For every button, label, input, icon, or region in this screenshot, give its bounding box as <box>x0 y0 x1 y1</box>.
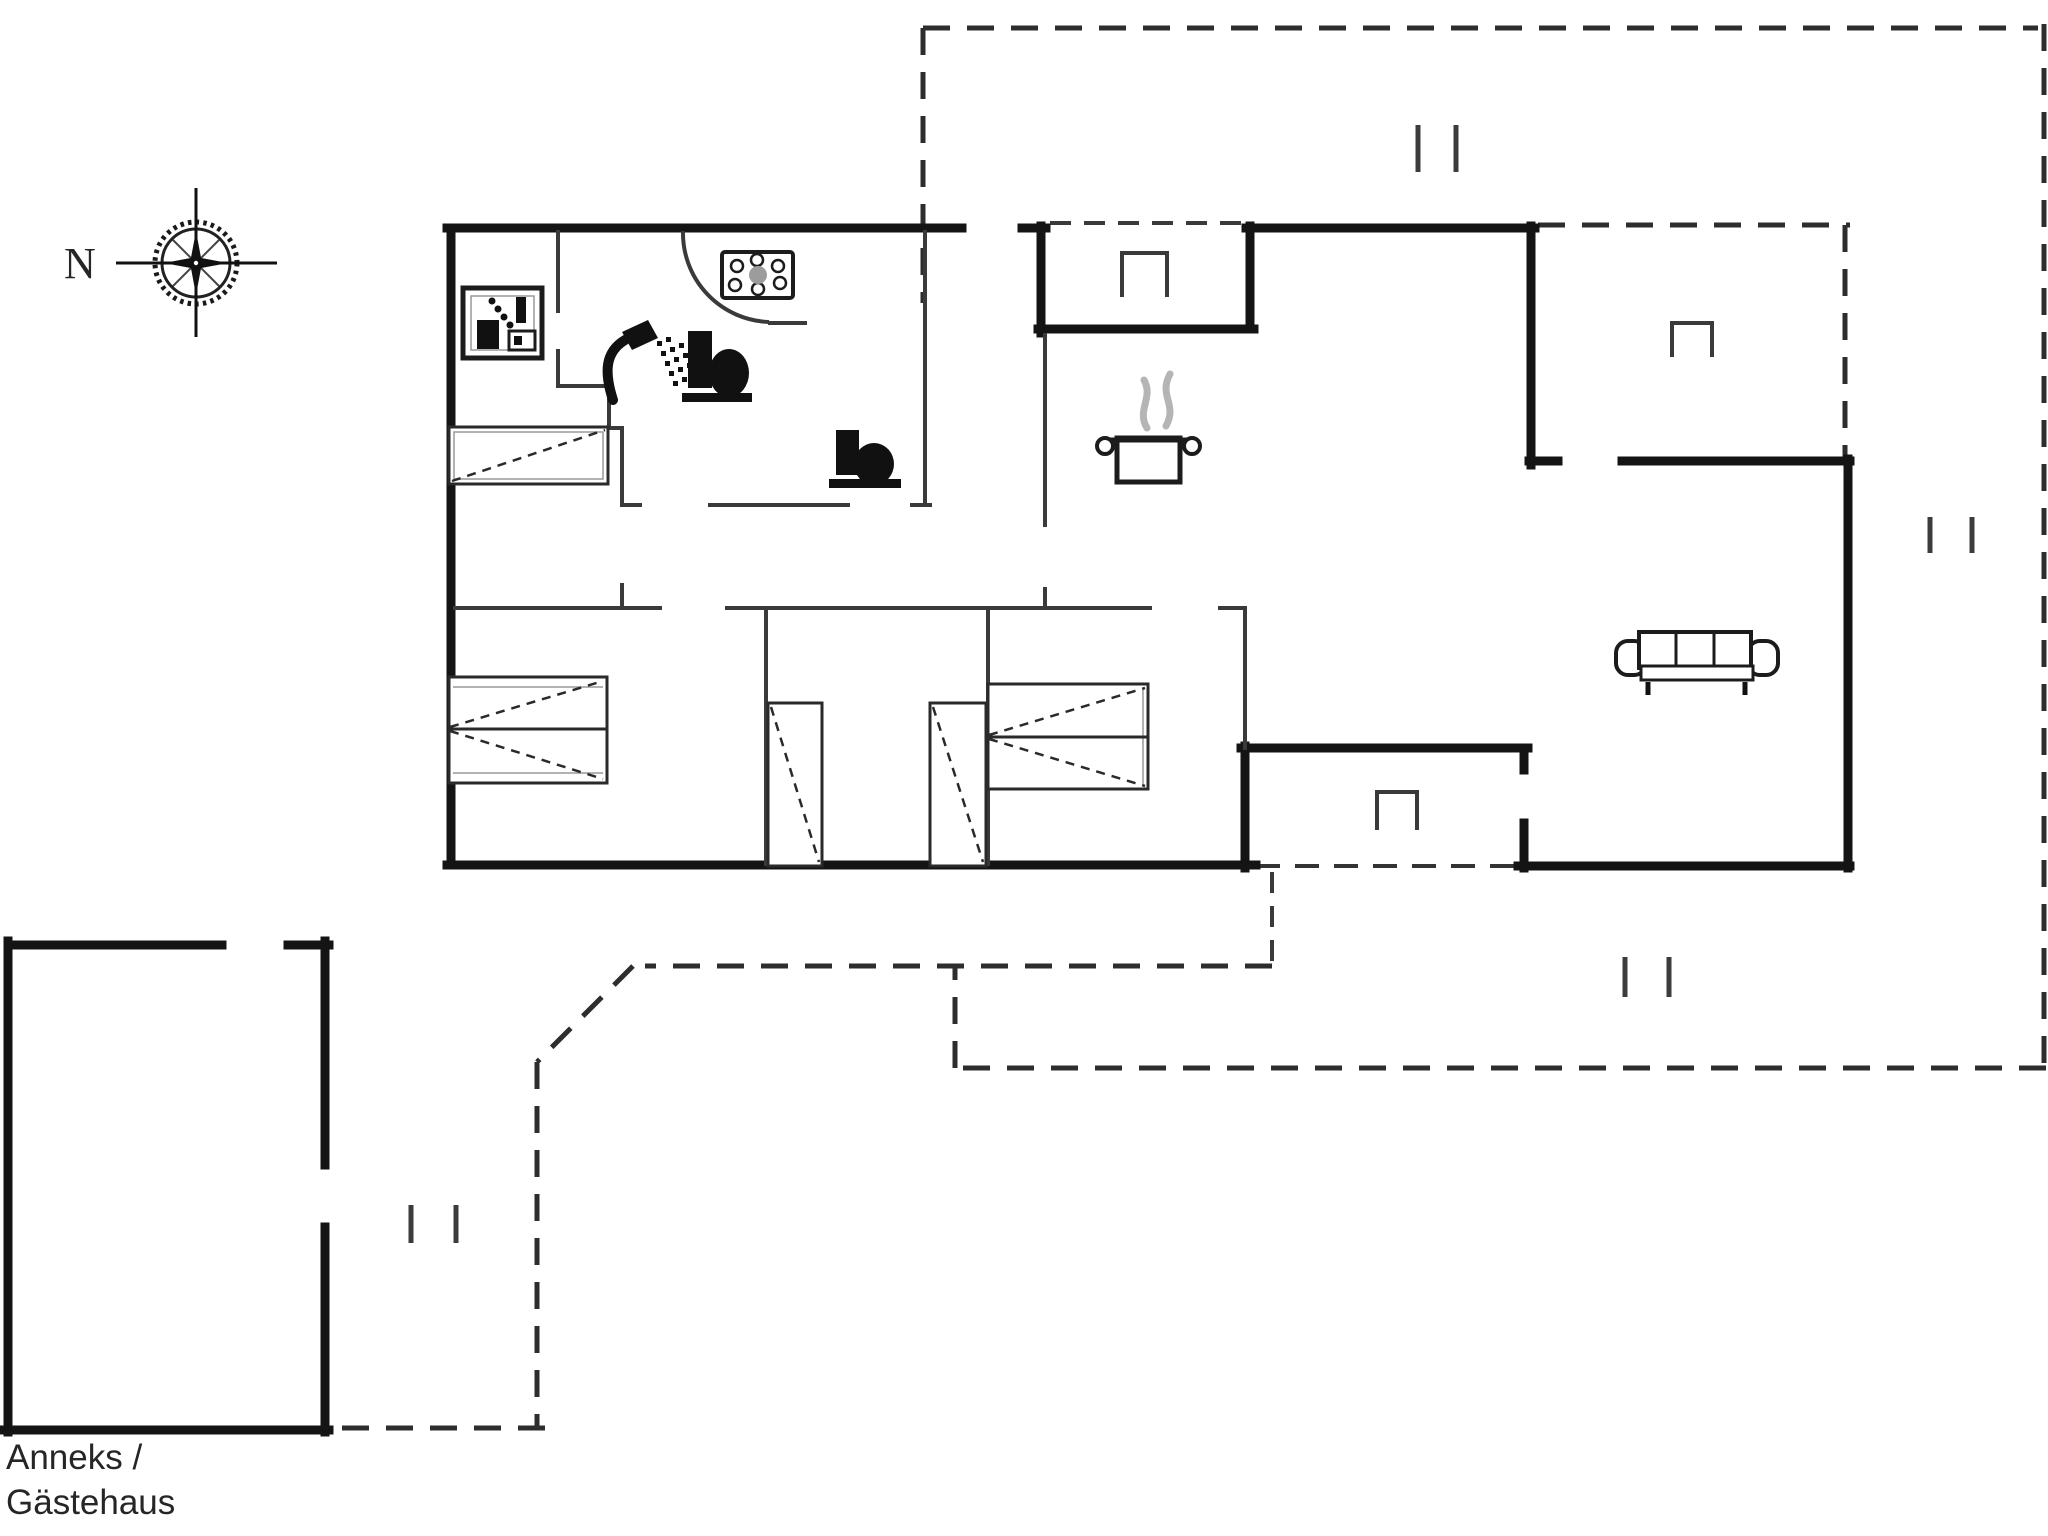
whirlpool-icon-jet-4 <box>729 279 741 291</box>
toilet-icon-wc-base <box>829 479 901 488</box>
step-marker-east <box>1672 323 1712 357</box>
steam-icon-wisp-2 <box>1166 374 1170 426</box>
toilet-icon-bath-tank <box>688 331 712 388</box>
toilet-icon-bath-bowl <box>709 349 749 397</box>
whirlpool-icon-jet-2 <box>751 254 763 266</box>
whirlpool-icon-center <box>749 266 767 284</box>
washer-icon-dot-2 <box>495 306 502 313</box>
toilet-icon-bath-base <box>682 393 752 402</box>
steam-icon-wisp-1 <box>1143 380 1147 428</box>
floor-plan <box>0 0 2048 1536</box>
washer-icon-basket <box>477 320 499 349</box>
whirlpool-icon-jet-5 <box>752 283 764 295</box>
compass-center-dot <box>194 261 198 265</box>
pot-icon-body <box>1117 438 1180 482</box>
toilet-icon-wc-bowl <box>854 443 894 485</box>
pot-icon-handle-right <box>1184 438 1200 454</box>
floor-plan-page: N Anneks / Gästehaus <box>0 0 2048 1536</box>
washer-icon-dot-1 <box>489 298 496 305</box>
path-diagonal-dash <box>537 966 633 1062</box>
pot-icon-handle-left <box>1097 438 1113 454</box>
shower-icon-hose <box>608 340 625 400</box>
sofa-icon-seat <box>1641 666 1753 680</box>
step-marker-porch <box>1377 792 1417 830</box>
whirlpool-icon-jet-3 <box>772 260 784 272</box>
annex-label-line2: Gästehaus <box>6 1481 175 1526</box>
annex-label-line1: Anneks / <box>6 1436 175 1481</box>
sofa-icon-back <box>1639 632 1751 668</box>
annex-label: Anneks / Gästehaus <box>6 1436 175 1526</box>
shower-icon-head <box>622 320 658 350</box>
washer-icon-dot-4 <box>507 322 514 329</box>
whirlpool-icon-jet-1 <box>731 260 743 272</box>
whirlpool-icon-jet-6 <box>774 277 786 289</box>
step-marker-north <box>1122 253 1167 297</box>
washer-icon-machine-door <box>514 336 522 345</box>
compass-north-label: N <box>64 238 96 289</box>
washer-icon-dot-3 <box>501 314 508 321</box>
washer-icon-bottle <box>516 297 526 323</box>
